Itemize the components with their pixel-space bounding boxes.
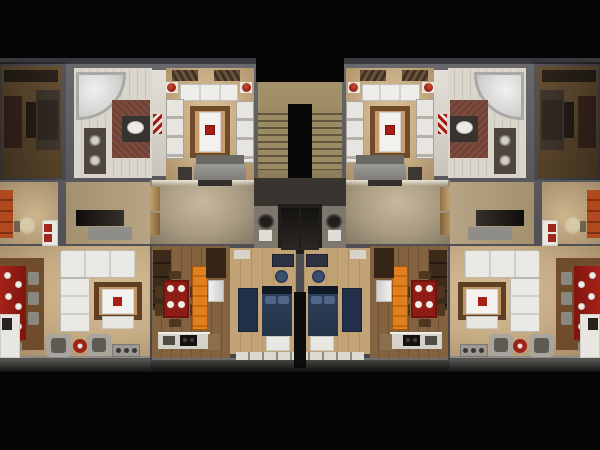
doorway-shadow <box>198 180 232 186</box>
sink-basin <box>88 135 102 146</box>
blue-pillow <box>278 296 289 304</box>
burner <box>406 338 410 342</box>
counter-appliance <box>588 318 598 330</box>
dining-chair <box>561 292 572 305</box>
wc-tank <box>259 230 272 241</box>
hallway-door <box>150 187 160 211</box>
sectional-sofa-back <box>60 250 136 278</box>
wardrobe-units <box>236 101 254 163</box>
red-lamp <box>167 83 176 92</box>
low-shelf <box>356 155 404 164</box>
armchair-seat <box>534 338 549 353</box>
bedroom-valance <box>360 70 386 81</box>
armchair-seat <box>51 338 66 353</box>
entry-cabinet <box>88 227 132 240</box>
burner <box>413 338 417 342</box>
hallway-floor <box>346 180 450 244</box>
ottoman <box>466 316 498 329</box>
kitchen-chair <box>155 304 163 316</box>
stairwell-void <box>300 104 312 178</box>
tv-console <box>76 210 124 226</box>
foot-dresser <box>310 336 334 351</box>
office-chair-back <box>14 221 20 232</box>
kitchen-chair <box>419 319 431 327</box>
red-drawer <box>548 234 556 242</box>
wardrobe-units <box>166 99 184 159</box>
wardrobe-units <box>346 101 364 163</box>
blue-rug <box>342 288 362 332</box>
kitchen-side-cabinet <box>208 334 220 350</box>
red-pillow <box>385 125 395 135</box>
dining-plate <box>578 281 585 288</box>
blue-desk-chair <box>312 270 325 283</box>
chevron-decal <box>153 114 162 134</box>
kitchen-plate <box>415 301 422 308</box>
hallway-floor <box>150 180 254 244</box>
ac-vent <box>132 348 137 353</box>
stairwell-top-cutout <box>256 56 300 82</box>
blue-pillow <box>265 296 276 304</box>
sectional-sofa-back <box>464 250 540 278</box>
kitchen-sink <box>163 336 175 345</box>
stairwell-top-cutout <box>300 56 344 82</box>
tv-console <box>476 210 524 226</box>
blue-bed-headboard <box>308 286 338 294</box>
wc-toilet <box>326 214 342 229</box>
dining-chair <box>28 312 39 325</box>
corner-shelf <box>234 250 250 259</box>
kitchen-plate <box>415 285 422 292</box>
office-chair-back <box>580 221 586 232</box>
dining-chair <box>561 272 572 285</box>
foot-dresser <box>266 336 290 351</box>
round-side-table <box>73 339 87 353</box>
kitchen-sink <box>425 336 437 345</box>
corner-shelf <box>350 250 366 259</box>
red-lamp <box>424 83 433 92</box>
sectional-sofa-arm <box>60 278 90 332</box>
headboard-sofa <box>362 84 420 101</box>
kitchen-plate <box>426 285 433 292</box>
kitchen-side-cabinet <box>380 334 392 350</box>
fridge <box>376 280 392 302</box>
stair-steps <box>312 108 342 170</box>
dining-plate <box>15 303 22 310</box>
armchair-seat <box>494 338 508 352</box>
ac-vent <box>463 348 468 353</box>
bedroom-valance <box>214 70 240 81</box>
kitchen-chair <box>169 319 181 327</box>
ac-vent <box>116 348 121 353</box>
burner <box>183 338 187 342</box>
dining-chair <box>28 272 39 285</box>
red-drawer <box>548 224 556 232</box>
bedroom-valance <box>172 70 198 81</box>
dining-plate <box>588 293 595 300</box>
round-side-table <box>513 339 527 353</box>
office-red-shelving <box>0 190 13 238</box>
shaft-door <box>281 208 299 250</box>
ac-vent <box>124 348 129 353</box>
orange-runner-rug <box>392 266 408 330</box>
red-centerpiece <box>478 297 487 306</box>
ac-vent <box>479 348 484 353</box>
toilet <box>456 121 473 134</box>
kitchen-chair <box>155 286 163 298</box>
sink-basin <box>498 155 512 166</box>
dark-bedroom-shade <box>0 62 66 180</box>
entry-cabinet <box>468 227 512 240</box>
hallway-door <box>440 187 450 211</box>
sink-basin <box>498 135 512 146</box>
ac-vent <box>471 348 476 353</box>
desk <box>272 254 294 267</box>
apartment-unit-left <box>0 0 300 450</box>
counter-appliance <box>2 318 12 330</box>
ottoman <box>102 316 134 329</box>
office-chair <box>18 216 36 234</box>
window-sill <box>306 352 364 360</box>
red-drawer <box>44 224 52 232</box>
dark-bedroom-shade <box>534 62 600 180</box>
wc-floor <box>320 206 346 252</box>
burner <box>190 338 194 342</box>
wc-floor <box>254 206 280 252</box>
office-red-shelving <box>587 190 600 238</box>
bedroom-valance <box>402 70 428 81</box>
fridge <box>208 280 224 302</box>
kitchen-upper-cabinet <box>374 248 394 278</box>
kitchen-plate <box>167 285 174 292</box>
blue-bed-headboard <box>262 286 292 294</box>
shaft-door <box>301 208 319 250</box>
doorway-shadow <box>368 180 402 186</box>
dining-plate <box>578 303 585 310</box>
sectional-sofa-arm <box>510 278 540 332</box>
center-divider-wall <box>300 292 306 368</box>
red-lamp <box>349 83 358 92</box>
blue-pillow <box>324 296 335 304</box>
dining-plate <box>4 272 11 279</box>
floor-plan-render <box>0 0 600 450</box>
kitchen-chair <box>419 271 431 279</box>
apartment-unit-right <box>300 0 600 450</box>
desk <box>306 254 328 267</box>
blue-rug <box>238 288 258 332</box>
dining-plate <box>5 293 12 300</box>
hallway-door <box>440 213 450 235</box>
dining-plate <box>589 272 596 279</box>
blue-pillow <box>311 296 322 304</box>
bottom-fade <box>0 360 300 376</box>
red-pillow <box>205 125 215 135</box>
hallway-door <box>150 213 160 235</box>
red-centerpiece <box>113 297 122 306</box>
stair-steps <box>258 108 288 170</box>
kitchen-chair <box>169 271 181 279</box>
kitchen-upper-cabinet <box>206 248 226 278</box>
stairwell-void <box>288 104 300 178</box>
dining-plate <box>15 281 22 288</box>
kitchen-plate <box>178 301 185 308</box>
red-drawer <box>44 234 52 242</box>
bottom-fade <box>300 360 600 376</box>
chevron-decal <box>438 114 447 134</box>
kitchen-plate <box>178 285 185 292</box>
kitchen-plate <box>167 301 174 308</box>
kitchen-chair <box>437 304 445 316</box>
headboard-sofa <box>180 84 238 101</box>
armchair-seat <box>92 338 106 352</box>
red-lamp <box>242 83 251 92</box>
dark-bench <box>408 167 422 180</box>
dining-chair <box>561 312 572 325</box>
low-shelf <box>196 155 244 164</box>
blue-desk-chair <box>275 270 288 283</box>
kitchen-plate <box>426 301 433 308</box>
wc-toilet <box>258 214 274 229</box>
wc-tank <box>328 230 341 241</box>
toilet <box>127 121 144 134</box>
dark-bench <box>178 167 192 180</box>
wardrobe-units <box>416 99 434 159</box>
dining-chair <box>28 292 39 305</box>
gray-dresser <box>354 164 406 180</box>
window-sill <box>236 352 294 360</box>
sink-basin <box>88 155 102 166</box>
kitchen-chair <box>437 286 445 298</box>
gray-dresser <box>194 164 246 180</box>
